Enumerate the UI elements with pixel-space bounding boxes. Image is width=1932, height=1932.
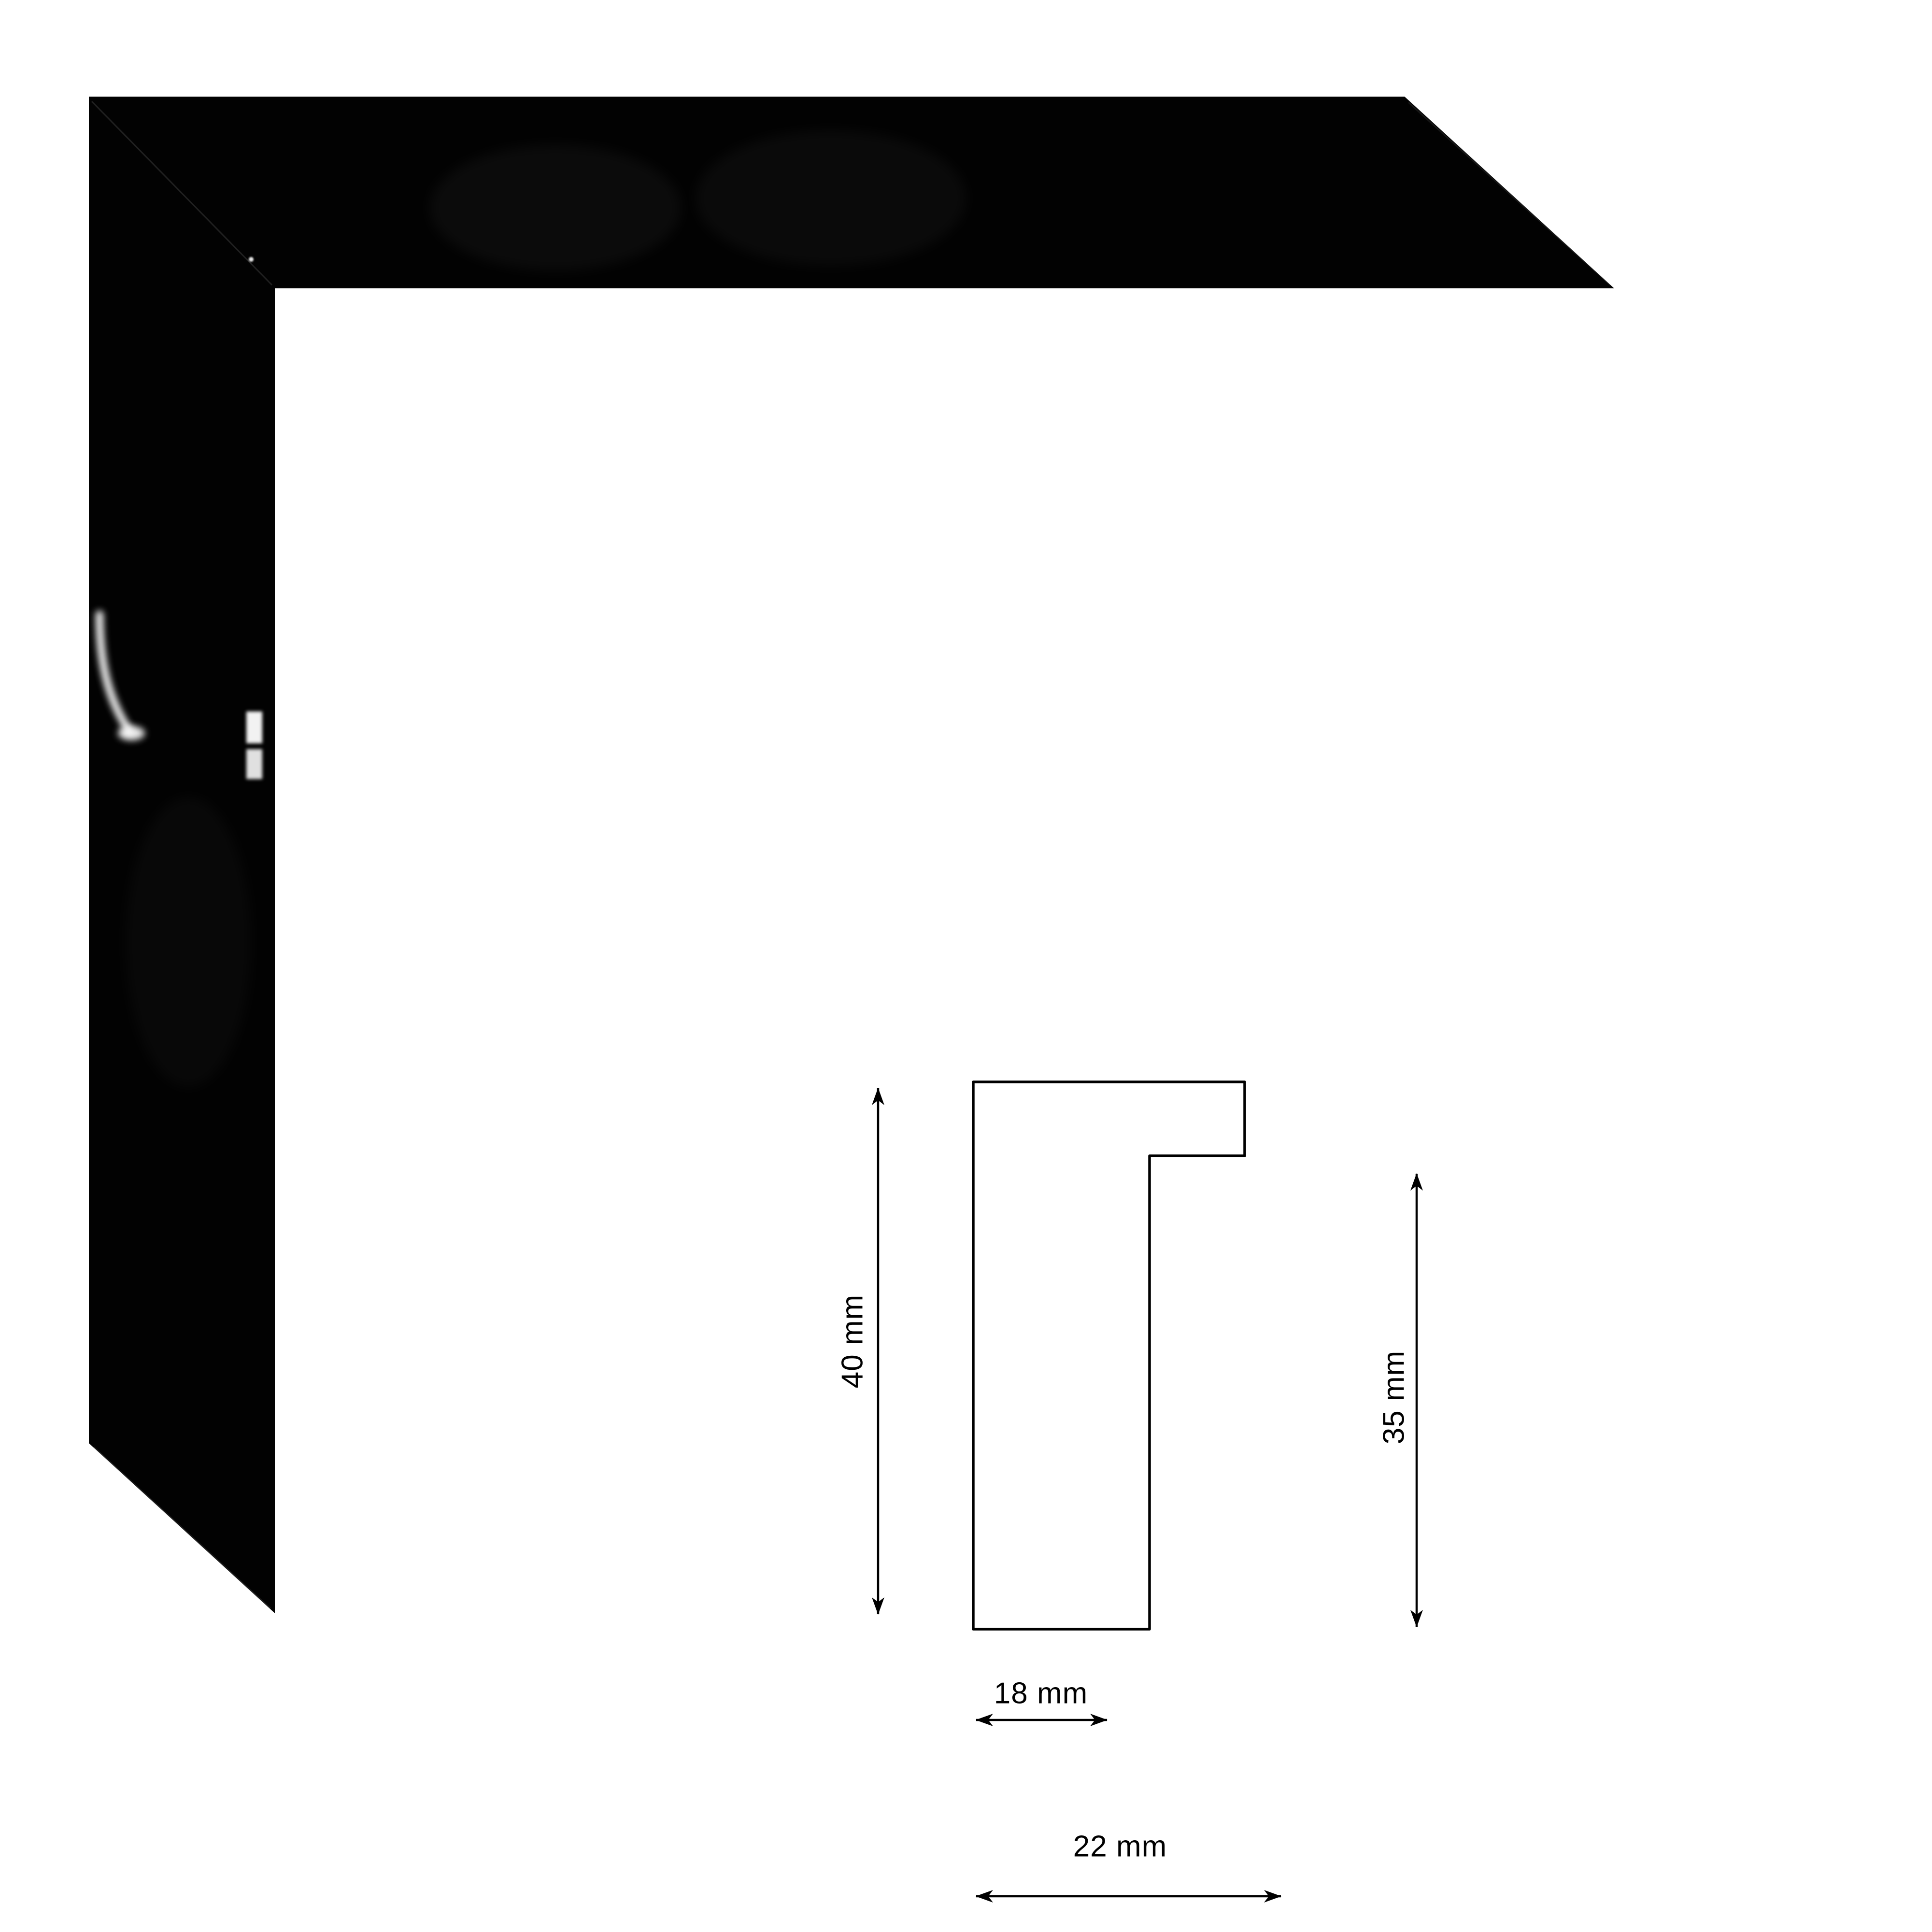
- face-reflection-3: [126, 797, 251, 1087]
- dimension-18mm: 18 mm: [976, 1677, 1107, 1720]
- dimension-40mm: 40 mm: [836, 1088, 879, 1614]
- face-reflection-1: [430, 145, 681, 270]
- dimension-label-22mm: 22 mm: [1073, 1830, 1167, 1863]
- product-image: 40 mm 35 mm 18 mm 22 mm: [0, 0, 1932, 1932]
- seam-glint: [249, 257, 254, 262]
- frame-sample-and-dimension-diagram: 40 mm 35 mm 18 mm 22 mm: [0, 0, 1932, 1932]
- outer-arris-streak-blob: [118, 726, 145, 740]
- profile-dimension-diagram: 40 mm 35 mm 18 mm 22 mm: [836, 1082, 1417, 1896]
- profile-cross-section-outline: [973, 1082, 1245, 1629]
- dimension-label-40mm: 40 mm: [836, 1294, 869, 1388]
- dimension-35mm: 35 mm: [1378, 1174, 1417, 1627]
- dimension-label-35mm: 35 mm: [1378, 1350, 1411, 1444]
- face-reflection-2: [696, 130, 966, 266]
- left-lip-specular-1: [246, 711, 262, 743]
- dimension-label-18mm: 18 mm: [994, 1677, 1088, 1710]
- dimension-22mm: 22 mm: [976, 1830, 1281, 1897]
- left-lip-specular-2: [246, 749, 262, 779]
